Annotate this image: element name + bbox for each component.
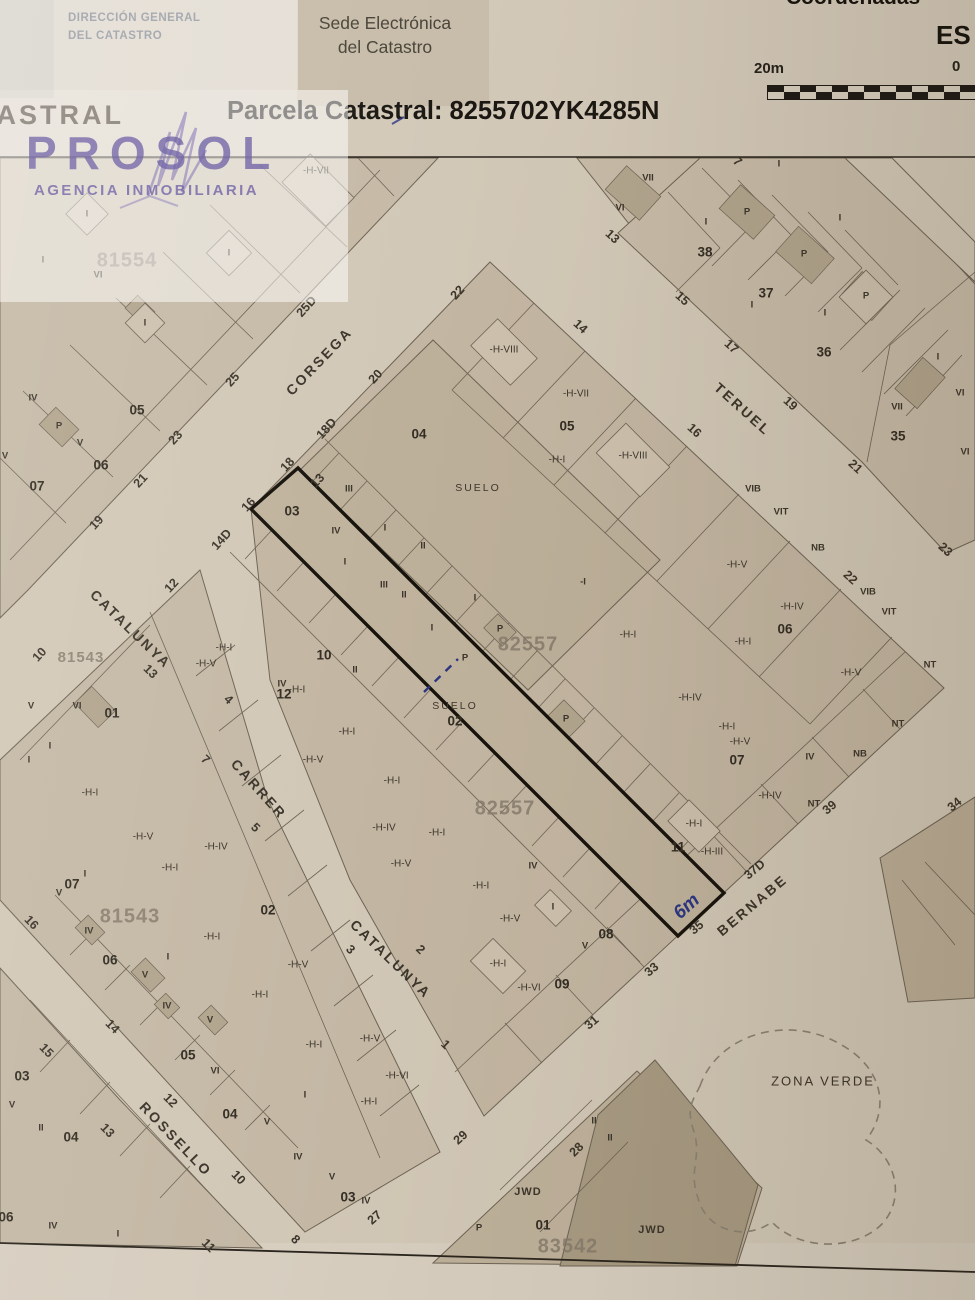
cadastral-map-page: CORSEGATERUELCATALUNYACARRERCATALUNYAROS… bbox=[0, 0, 975, 1300]
map-label: P bbox=[563, 714, 570, 725]
map-label: 05 bbox=[559, 419, 575, 434]
map-label: -H-I bbox=[289, 685, 306, 696]
map-label: -H-IV bbox=[758, 791, 782, 802]
map-label: IV bbox=[332, 526, 342, 537]
map-label: -H-V bbox=[727, 560, 748, 571]
map-label: IV bbox=[85, 926, 95, 937]
map-label: -H-I bbox=[549, 455, 566, 466]
map-label: II bbox=[591, 1116, 596, 1127]
map-label: 04 bbox=[63, 1130, 79, 1145]
map-label: -H-I bbox=[252, 990, 269, 1001]
map-label: -H-I bbox=[719, 722, 736, 733]
map-label: -H-I bbox=[384, 776, 401, 787]
map-label: 06 bbox=[93, 458, 109, 473]
map-label: 09 bbox=[554, 977, 569, 992]
blue-pen-tick bbox=[392, 117, 404, 124]
map-label: -H-V bbox=[303, 755, 324, 766]
map-label: -H-IV bbox=[780, 602, 804, 613]
map-label: -H-VIII bbox=[490, 345, 519, 356]
map-label: -I bbox=[580, 577, 586, 588]
map-label: -H-IV bbox=[204, 842, 228, 853]
map-label: -H-I bbox=[473, 881, 490, 892]
map-label: -H-I bbox=[735, 637, 752, 648]
map-label: -H-I bbox=[204, 932, 221, 943]
map-label: I bbox=[824, 308, 827, 319]
map-label: -H-V bbox=[360, 1034, 381, 1045]
map-label: V bbox=[142, 970, 149, 981]
map-label: NB bbox=[853, 749, 867, 760]
map-label: VI bbox=[961, 447, 970, 458]
map-label: -H-V bbox=[730, 737, 751, 748]
map-label: 35 bbox=[890, 429, 906, 444]
map-label: V bbox=[2, 451, 9, 462]
map-label: III bbox=[345, 484, 353, 495]
map-label: P bbox=[56, 421, 63, 432]
map-label: JWD bbox=[514, 1186, 541, 1198]
map-label: I bbox=[144, 318, 147, 329]
map-label: P bbox=[476, 1223, 483, 1234]
map-label: -H-V bbox=[133, 832, 154, 843]
watermark-brand: PROSOL bbox=[26, 126, 280, 180]
map-label: 06 bbox=[777, 622, 793, 637]
map-label: 02 bbox=[447, 714, 462, 729]
map-label: V bbox=[207, 1015, 214, 1026]
map-label: 83542 bbox=[538, 1235, 599, 1257]
map-label: 10 bbox=[316, 648, 331, 663]
map-label: I bbox=[28, 755, 31, 766]
map-label: VIB bbox=[745, 484, 761, 495]
map-label: V bbox=[582, 941, 589, 952]
map-label: 07 bbox=[729, 753, 744, 768]
map-label: NT bbox=[808, 799, 821, 810]
map-label: -H-IV bbox=[372, 823, 396, 834]
map-label: IV bbox=[806, 752, 816, 763]
map-label: 82557 bbox=[498, 633, 559, 655]
map-label: NB bbox=[811, 543, 825, 554]
map-label: I bbox=[384, 523, 387, 534]
map-label: IV bbox=[49, 1221, 59, 1232]
map-label: II bbox=[607, 1133, 612, 1144]
map-label: 81543 bbox=[58, 649, 105, 666]
map-label: 03 bbox=[14, 1069, 30, 1084]
map-label: I bbox=[751, 300, 754, 311]
map-label: -H-I bbox=[686, 819, 703, 830]
map-label: -H-VI bbox=[517, 983, 540, 994]
map-label: 06 bbox=[0, 1210, 14, 1225]
map-label: IV bbox=[163, 1001, 173, 1012]
map-label: VI bbox=[956, 388, 965, 399]
map-label: 11 bbox=[671, 840, 686, 855]
map-label: II bbox=[352, 665, 357, 676]
map-label: IV bbox=[278, 679, 288, 690]
map-label: VIT bbox=[774, 507, 789, 518]
map-label: -H-VII bbox=[563, 389, 589, 400]
map-label: I bbox=[84, 869, 87, 880]
map-label: NT bbox=[892, 719, 905, 730]
map-label: -H-I bbox=[339, 727, 356, 738]
map-label: 36 bbox=[816, 345, 832, 360]
map-label: 81543 bbox=[100, 905, 161, 927]
map-label: VIT bbox=[882, 607, 897, 618]
map-label: III bbox=[380, 580, 388, 591]
map-label: 07 bbox=[64, 877, 79, 892]
map-label: 03 bbox=[340, 1190, 356, 1205]
map-label: -H-I bbox=[490, 959, 507, 970]
map-label: -H-III bbox=[701, 847, 723, 858]
map-label: II bbox=[401, 590, 406, 601]
map-label: -H-I bbox=[82, 788, 99, 799]
map-label: SUELO bbox=[455, 482, 501, 494]
watermark-tagline: AGENCIA INMOBILIARIA bbox=[34, 182, 259, 199]
map-label: -H-VI bbox=[385, 1071, 408, 1082]
map-label: IV bbox=[362, 1196, 372, 1207]
map-label: ZONA VERDE bbox=[771, 1073, 875, 1088]
map-label: 01 bbox=[535, 1218, 551, 1233]
map-label: -H-I bbox=[162, 863, 179, 874]
map-label: -H-V bbox=[288, 960, 309, 971]
map-label: I bbox=[167, 952, 170, 963]
map-label: P bbox=[462, 653, 469, 664]
map-label: 04 bbox=[222, 1107, 238, 1122]
map-label: I bbox=[552, 902, 555, 913]
map-label: -H-I bbox=[216, 643, 233, 654]
map-label: -H-I bbox=[620, 630, 637, 641]
map-label: VII bbox=[891, 402, 903, 413]
map-label: -H-V bbox=[196, 659, 217, 670]
map-label: 03 bbox=[284, 504, 300, 519]
map-label: V bbox=[9, 1100, 16, 1111]
map-label: 82557 bbox=[475, 797, 536, 819]
map-label: NT bbox=[924, 660, 937, 671]
map-label: V bbox=[28, 701, 35, 712]
map-label: V bbox=[56, 888, 63, 899]
map-label: -H-VIII bbox=[619, 451, 648, 462]
map-label: 08 bbox=[598, 927, 614, 942]
map-label: -H-I bbox=[429, 828, 446, 839]
map-label: IV bbox=[529, 861, 539, 872]
map-label: II bbox=[420, 541, 425, 552]
map-label: I bbox=[344, 557, 347, 568]
map-label: JWD bbox=[638, 1224, 665, 1236]
map-label: SUELO bbox=[432, 700, 478, 712]
map-label: 06 bbox=[102, 953, 118, 968]
map-label: VI bbox=[73, 701, 82, 712]
map-label: I bbox=[431, 623, 434, 634]
map-label: -H-V bbox=[841, 668, 862, 679]
map-label: VI bbox=[211, 1066, 220, 1077]
map-label: 04 bbox=[411, 427, 427, 442]
map-label: 05 bbox=[129, 403, 145, 418]
map-label: I bbox=[117, 1229, 120, 1240]
map-label: 05 bbox=[180, 1048, 196, 1063]
map-label: P bbox=[497, 624, 504, 635]
map-label: V bbox=[329, 1172, 336, 1183]
map-label: -H-I bbox=[361, 1097, 378, 1108]
map-label: V bbox=[77, 438, 84, 449]
map-label: -H-IV bbox=[678, 693, 702, 704]
map-label: I bbox=[474, 593, 477, 604]
map-label: V bbox=[264, 1117, 271, 1128]
map-label: I bbox=[937, 352, 940, 363]
map-label: VIB bbox=[860, 587, 876, 598]
map-label: 07 bbox=[29, 479, 44, 494]
map-label: 02 bbox=[260, 903, 275, 918]
map-label: II bbox=[38, 1123, 43, 1134]
map-label: 01 bbox=[104, 706, 120, 721]
map-label: -H-V bbox=[500, 914, 521, 925]
map-label: I bbox=[304, 1090, 307, 1101]
map-label: IV bbox=[294, 1152, 304, 1163]
map-label: I bbox=[49, 741, 52, 752]
map-label: -H-V bbox=[391, 859, 412, 870]
map-label: -H-I bbox=[306, 1040, 323, 1051]
map-label: IV bbox=[29, 393, 39, 404]
